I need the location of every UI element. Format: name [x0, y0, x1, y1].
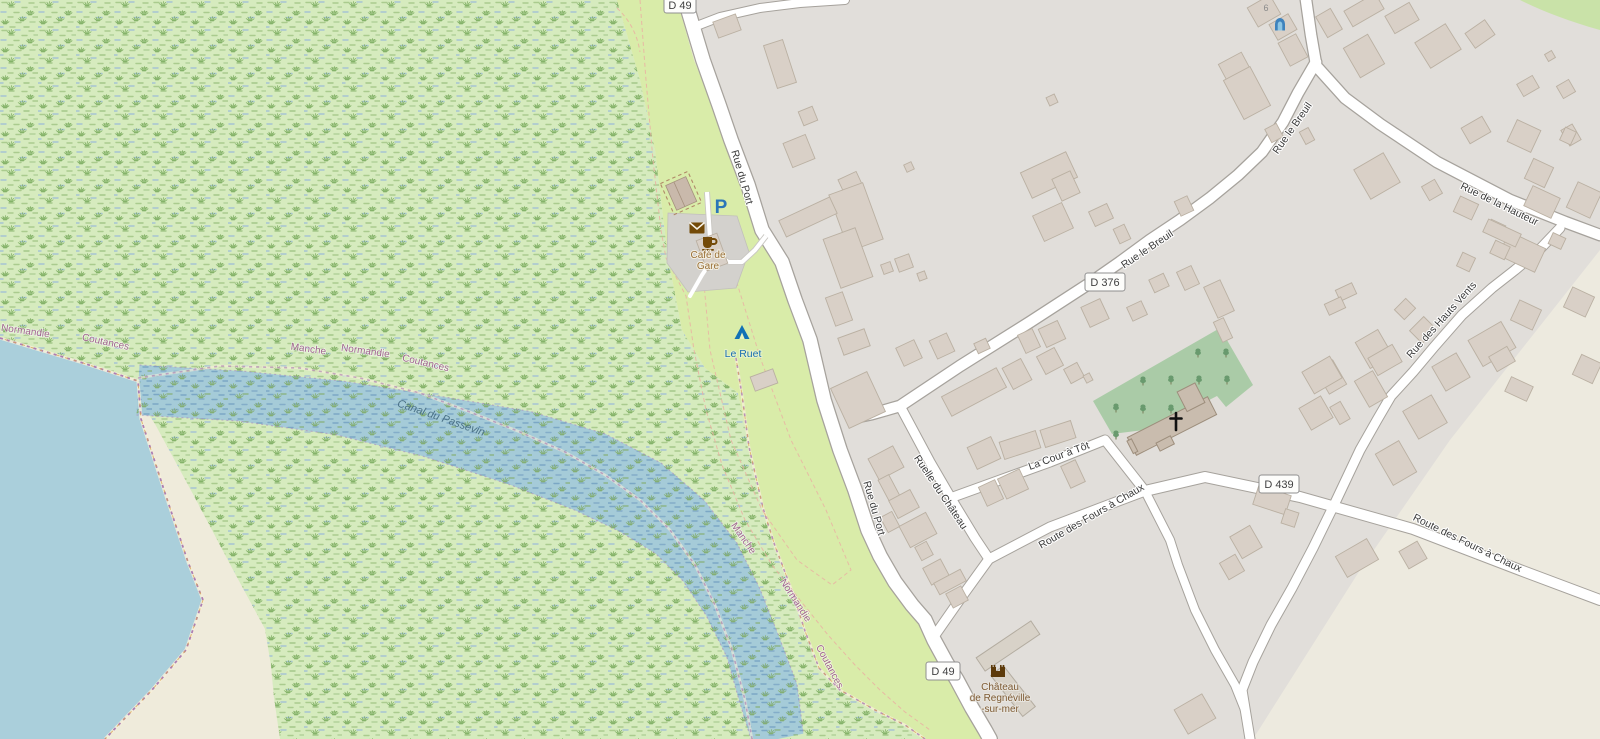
svg-text:Le Ruet: Le Ruet: [725, 348, 762, 360]
svg-text:D 49: D 49: [931, 666, 954, 678]
svg-text:Gare: Gare: [697, 261, 720, 272]
svg-text:-sur-mer: -sur-mer: [981, 704, 1019, 715]
svg-text:Château: Château: [981, 682, 1019, 693]
svg-text:de Regnéville: de Regnéville: [970, 693, 1031, 704]
svg-text:P: P: [715, 197, 728, 218]
svg-text:D 376: D 376: [1090, 277, 1119, 289]
svg-text:Café de: Café de: [690, 250, 725, 261]
svg-text:6: 6: [1263, 3, 1268, 13]
svg-text:D 439: D 439: [1264, 479, 1293, 491]
svg-text:D 49: D 49: [668, 0, 691, 12]
